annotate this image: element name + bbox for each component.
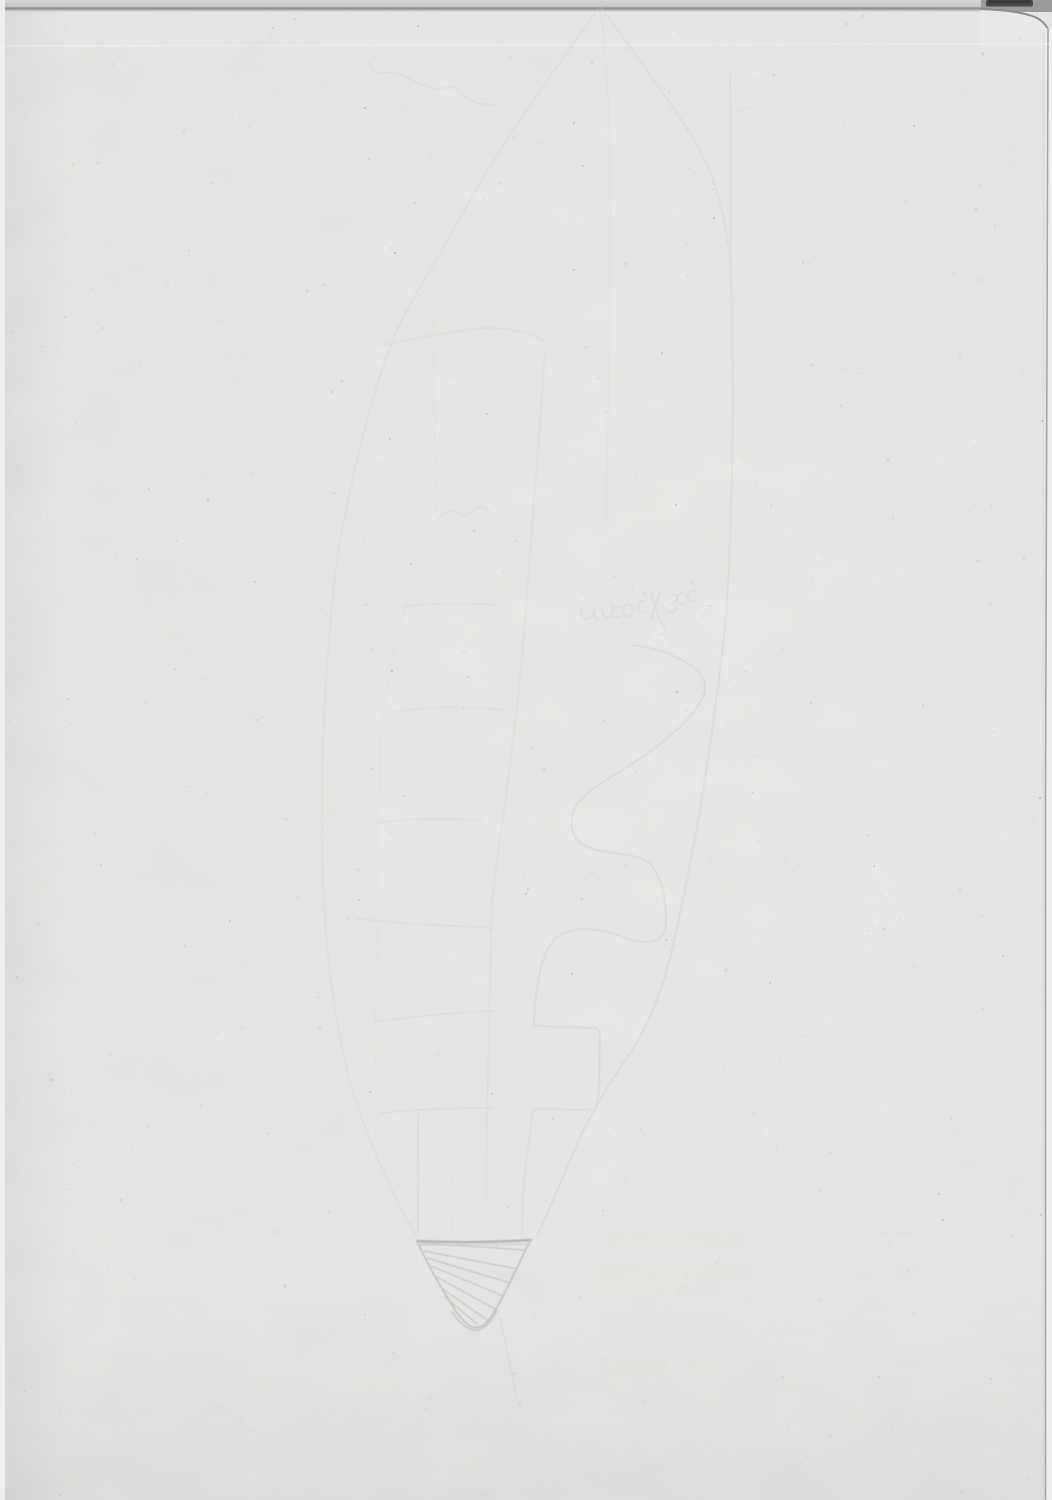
svg-text:NVIRGE DRLM: NVIRGE DRLM bbox=[604, 1231, 745, 1250]
svg-text:MENRA VOE: MENRA VOE bbox=[600, 1308, 720, 1327]
svg-text:ERNOS MIRE: ERNOS MIRE bbox=[602, 1283, 723, 1300]
svg-text:SERVN ANE: SERVN ANE bbox=[600, 1359, 716, 1378]
svg-text:BMOER CNRVE: BMOER CNRVE bbox=[600, 1262, 757, 1282]
